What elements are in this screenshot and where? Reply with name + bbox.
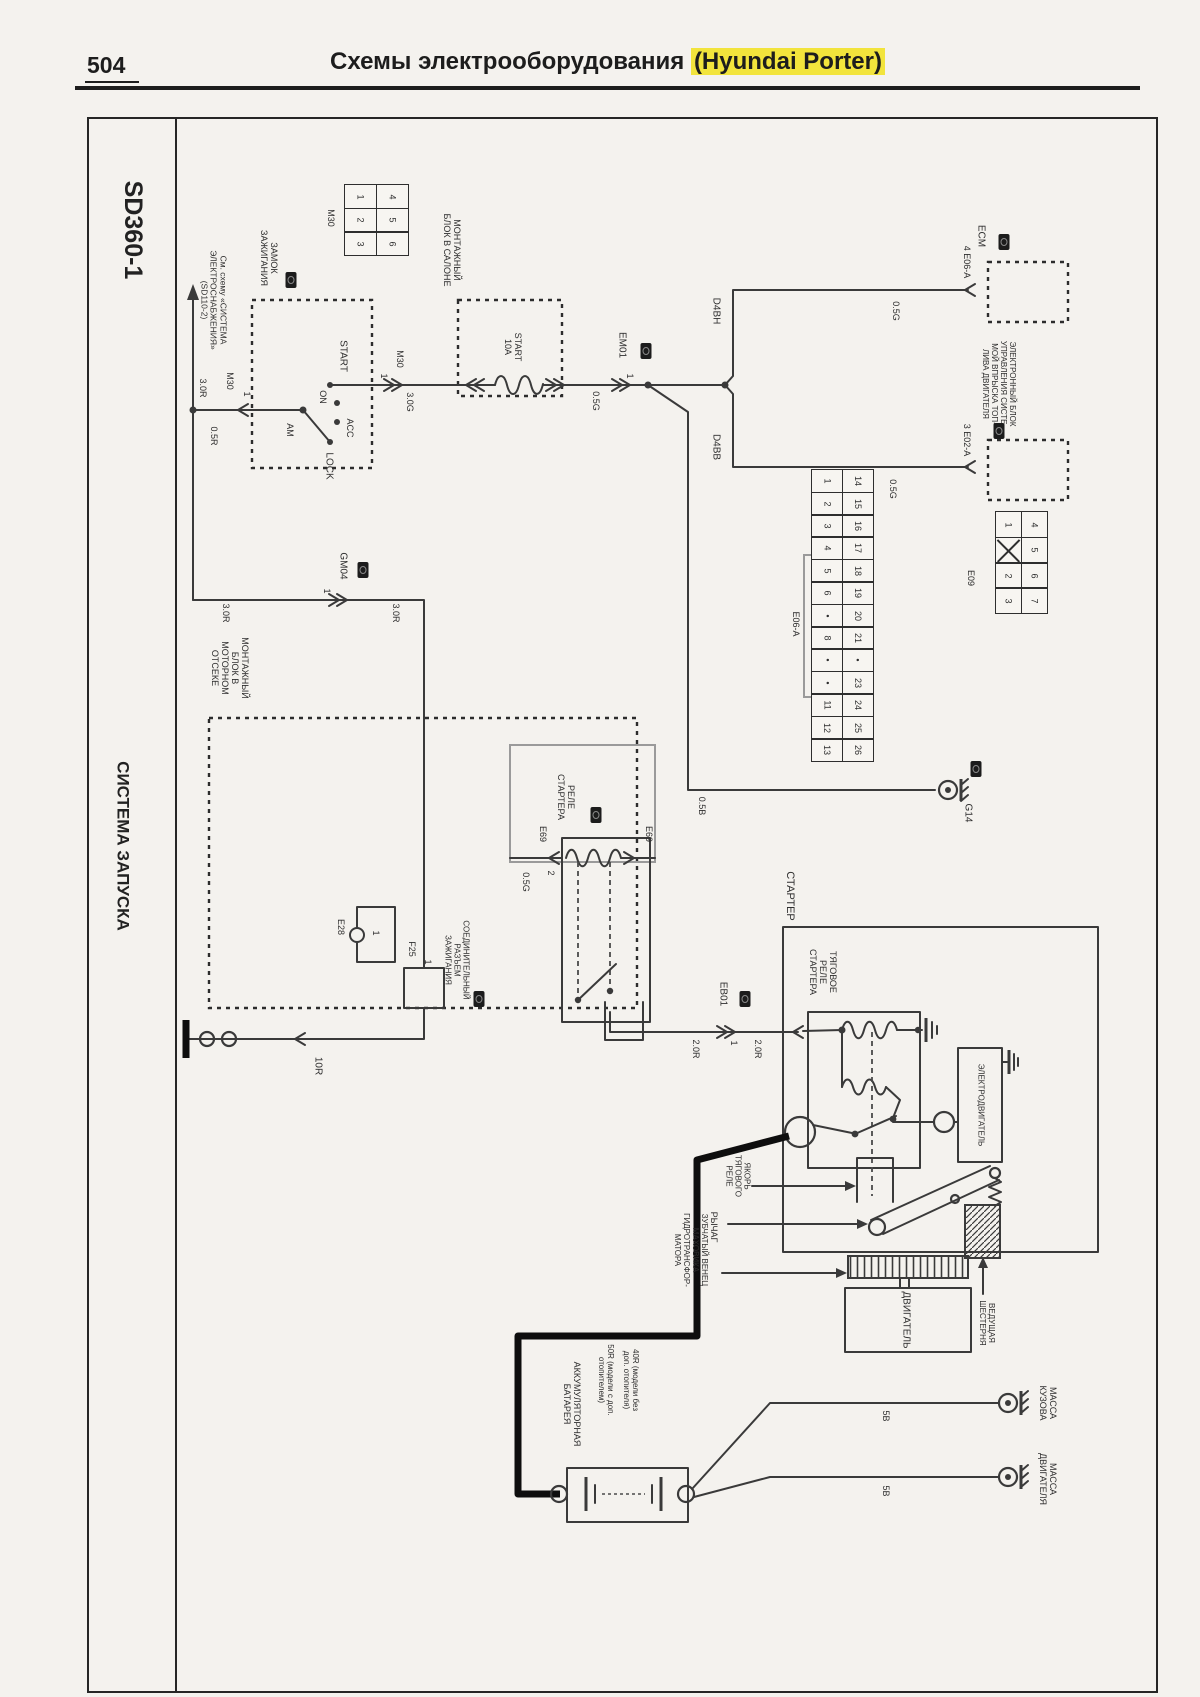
ecm-box xyxy=(988,262,1068,322)
injection-ecu-box xyxy=(988,440,1068,500)
wiring-diagram xyxy=(0,0,1200,1697)
diagram-frame xyxy=(88,118,1157,1692)
